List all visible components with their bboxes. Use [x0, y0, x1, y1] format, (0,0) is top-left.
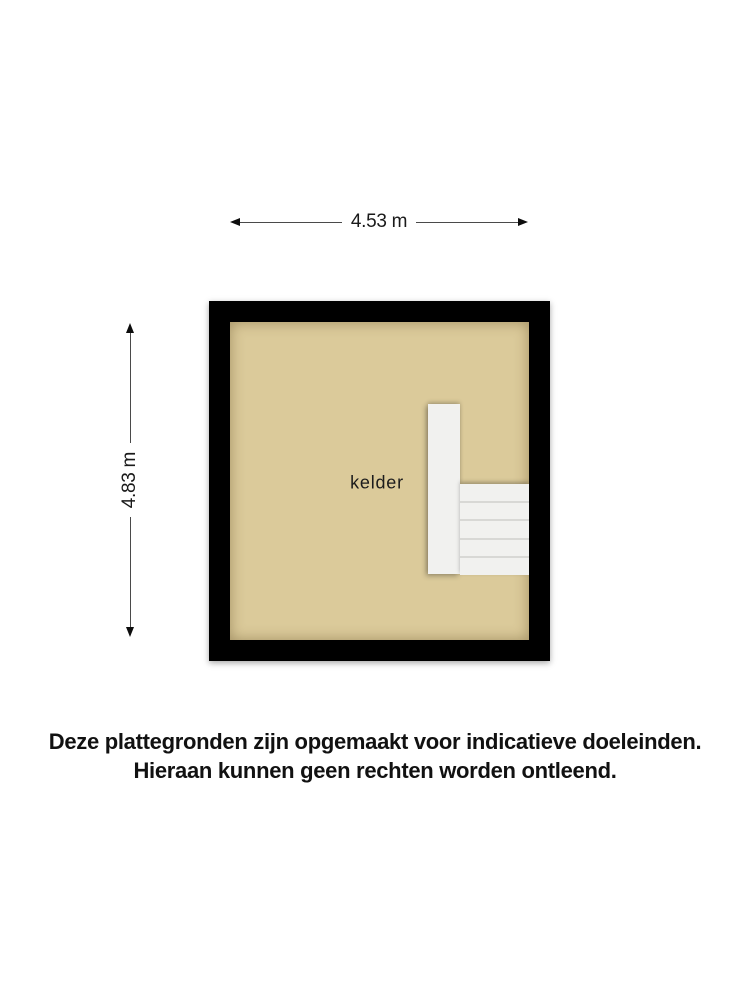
height-dimension-label: 4.83 m [119, 452, 141, 508]
dimension-line [130, 333, 131, 443]
arrow-down-icon [126, 627, 134, 637]
stair-tread [460, 556, 529, 575]
stair-tread [460, 519, 529, 538]
height-dimension: 4.83 m [118, 323, 142, 637]
disclaimer-line-1: Deze plattegronden zijn opgemaakt voor i… [0, 727, 750, 756]
staircase-wall [428, 404, 460, 574]
stair-tread [460, 484, 529, 501]
arrow-right-icon [518, 218, 528, 226]
dimension-line [240, 222, 342, 223]
plan-walls: kelder [209, 301, 550, 661]
stair-tread [460, 501, 529, 520]
disclaimer-line-2: Hieraan kunnen geen rechten worden ontle… [0, 756, 750, 785]
arrow-left-icon [230, 218, 240, 226]
floorplan-canvas: 4.53 m 4.83 m kelder Deze plattegronden … [0, 0, 750, 1000]
staircase [460, 484, 529, 575]
dimension-line [416, 222, 518, 223]
kelder-floor: kelder [230, 322, 529, 640]
disclaimer-text: Deze plattegronden zijn opgemaakt voor i… [0, 727, 750, 785]
room-label-kelder: kelder [350, 473, 404, 494]
dimension-line [130, 517, 131, 627]
width-dimension-label: 4.53 m [351, 211, 407, 233]
width-dimension: 4.53 m [230, 210, 528, 234]
arrow-up-icon [126, 323, 134, 333]
stair-tread [460, 538, 529, 557]
